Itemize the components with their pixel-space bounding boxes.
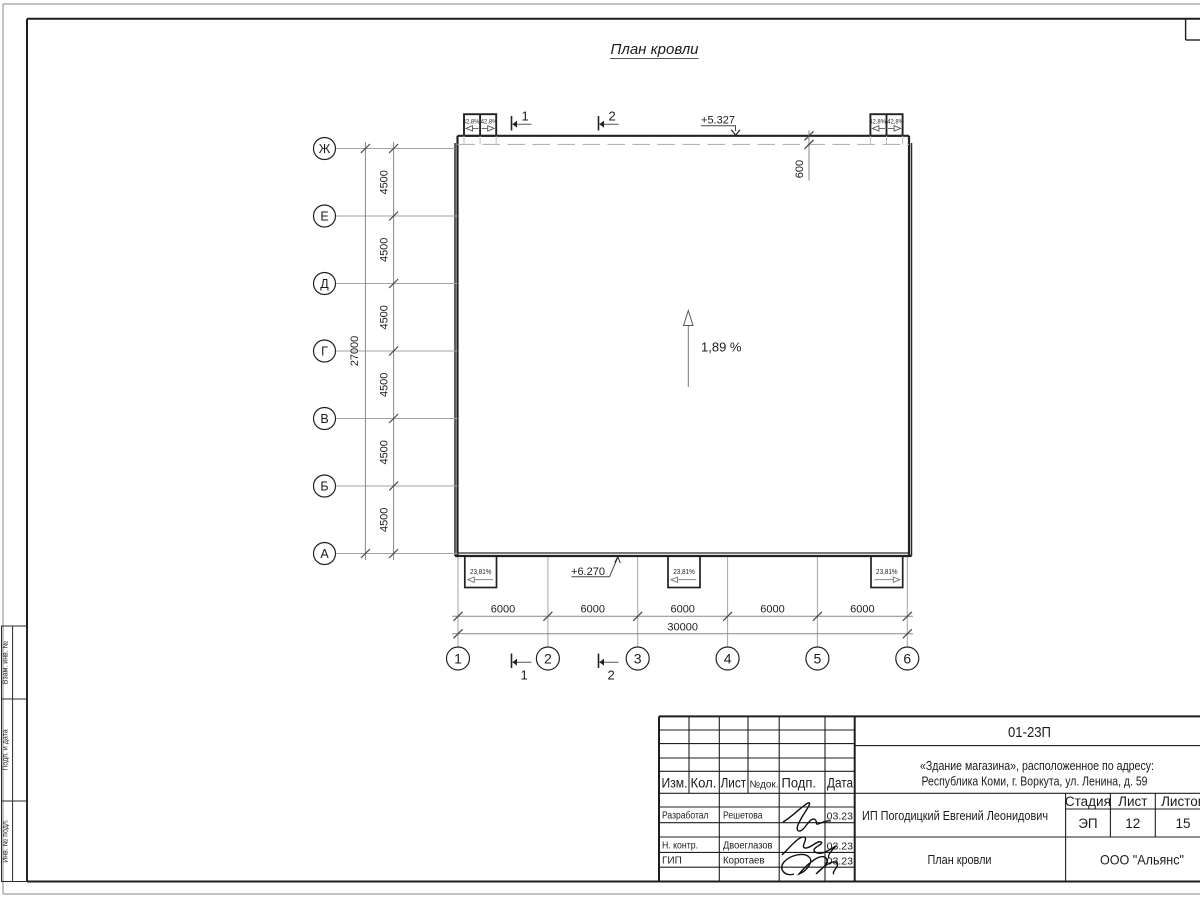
svg-text:Подп.: Подп. [782,776,817,791]
svg-text:30000: 30000 [667,622,698,634]
svg-text:4: 4 [724,651,732,667]
svg-text:6000: 6000 [491,604,515,616]
svg-text:ИП Погодицкий Евгений Леонидов: ИП Погодицкий Евгений Леонидович [862,809,1048,823]
svg-text:Лист: Лист [721,776,747,791]
svg-text:ГИП: ГИП [662,856,682,867]
svg-text:1: 1 [522,109,529,124]
svg-text:23,81%: 23,81% [673,567,695,576]
svg-text:А: А [320,547,329,561]
svg-text:42,8%: 42,8% [869,118,886,125]
svg-text:2: 2 [609,109,616,124]
svg-text:Б: Б [320,480,328,494]
svg-text:1,89 %: 1,89 % [701,340,742,355]
svg-text:03.23: 03.23 [827,841,853,853]
svg-text:4500: 4500 [379,238,391,262]
svg-text:5: 5 [814,651,822,667]
svg-text:23,81%: 23,81% [470,567,492,576]
svg-text:Г: Г [321,345,328,359]
svg-text:Е: Е [320,210,328,224]
svg-text:6000: 6000 [581,604,605,616]
svg-text:01-23П: 01-23П [1008,724,1051,741]
svg-text:2: 2 [544,651,552,667]
svg-text:42,8%: 42,8% [463,118,480,125]
svg-text:Двоеглазов: Двоеглазов [723,841,773,852]
svg-text:Изм.: Изм. [662,776,688,791]
svg-text:Коротаев: Коротаев [723,856,765,867]
svg-text:3: 3 [634,651,642,667]
svg-text:27000: 27000 [349,336,361,367]
svg-text:ООО "Альянс": ООО "Альянс" [1100,852,1184,868]
svg-text:1: 1 [454,651,462,667]
svg-text:Листов: Листов [1161,794,1200,809]
svg-text:42,8%: 42,8% [481,118,498,125]
svg-text:Инв. № подл.: Инв. № подл. [3,819,10,863]
svg-text:03.23: 03.23 [827,856,853,868]
svg-text:Ж: Ж [319,142,331,156]
svg-text:6000: 6000 [670,604,694,616]
svg-text:23,81%: 23,81% [876,567,898,576]
svg-text:600: 600 [794,160,806,178]
svg-text:4500: 4500 [379,508,391,532]
svg-text:4500: 4500 [379,373,391,397]
svg-text:6: 6 [903,651,911,667]
svg-text:Взам. инв. №: Взам. инв. № [3,641,10,684]
svg-text:«Здание магазина», расположенн: «Здание магазина», расположенное по адре… [920,759,1154,773]
svg-text:12: 12 [1125,816,1140,831]
svg-text:Кол.: Кол. [691,776,717,791]
svg-text:Подп. и дата: Подп. и дата [3,729,10,770]
svg-text:Дата: Дата [827,776,853,791]
svg-text:42,8%: 42,8% [887,118,904,125]
svg-text:ЭП: ЭП [1078,816,1097,831]
svg-text:№док.: №док. [750,780,779,791]
svg-text:Д: Д [320,277,329,291]
svg-text:Стадия: Стадия [1065,794,1111,809]
svg-text:+5.327: +5.327 [701,115,735,127]
svg-text:6000: 6000 [760,604,784,616]
svg-text:6000: 6000 [850,604,874,616]
svg-text:4500: 4500 [379,440,391,464]
svg-text:Лист: Лист [1118,794,1147,809]
svg-text:Решетова: Решетова [723,811,763,822]
svg-text:2: 2 [608,668,615,683]
svg-text:План кровли: План кровли [611,41,700,58]
svg-text:15: 15 [1175,816,1190,831]
svg-text:План кровли: План кровли [928,853,992,867]
svg-text:1: 1 [521,668,528,683]
svg-text:4500: 4500 [379,305,391,329]
svg-text:+6.270: +6.270 [571,566,605,578]
svg-text:В: В [320,412,328,426]
svg-text:Республика Коми, г. Воркута, у: Республика Коми, г. Воркута, ул. Ленина,… [922,775,1148,789]
svg-text:Н. контр.: Н. контр. [662,841,698,852]
svg-text:4500: 4500 [379,170,391,194]
svg-text:Разработал: Разработал [662,810,709,822]
